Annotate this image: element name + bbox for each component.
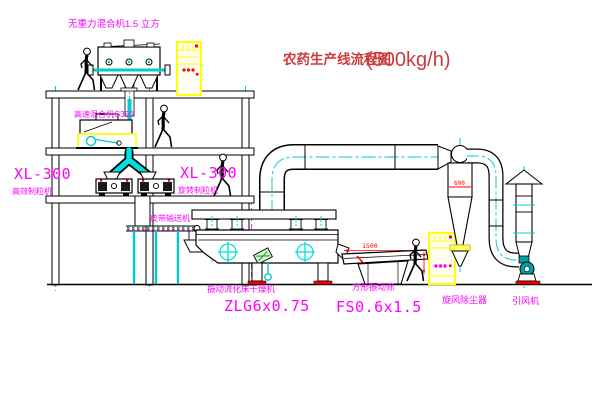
- cyclone-outlet-pipe: [467, 156, 520, 260]
- label-granulator-right-name: 旋转制粒机: [178, 185, 218, 195]
- dryer-exhaust-duct: [260, 145, 440, 214]
- indicator-dot: [195, 45, 198, 48]
- label-granulator-left-model: XL-300: [14, 165, 71, 183]
- sieve-base: [358, 261, 408, 284]
- label-high-speed-mixer: 高速混合机G350: [74, 109, 134, 119]
- label-dryer-name: 振动流化床干燥机: [207, 284, 276, 294]
- dim-cyclone-body: 600: [454, 180, 465, 187]
- left-wall: [52, 95, 59, 285]
- label-gravity-mixer: 无重力混合机1.5 立方: [68, 18, 160, 30]
- control-cabinet-2: [429, 233, 455, 284]
- label-belt-conveyor: 皮带输送机: [150, 213, 190, 223]
- page-title-capacity: (500kg/h): [366, 49, 451, 71]
- label-dryer-model: ZLG6x0.75: [224, 297, 310, 315]
- granulator-left: [96, 179, 132, 196]
- label-sieve-name: 方形振动筛: [352, 282, 395, 292]
- label-granulator-right-model: XL-300: [180, 164, 237, 182]
- label-sieve-model: FS0.6x1.5: [336, 298, 422, 316]
- label-cyclone: 旋风除尘器: [442, 294, 487, 305]
- label-granulator-left-name: 高效制粒机: [12, 186, 52, 196]
- dryer-hood: [192, 210, 336, 219]
- induced-draft-fan: [516, 256, 540, 285]
- worker-level2: [155, 105, 172, 147]
- label-fan: 引风机: [512, 295, 539, 306]
- control-cabinet-1: [177, 42, 201, 95]
- roof-slab: [46, 91, 254, 98]
- fan-base: [516, 281, 540, 285]
- process-flow-diagram: 无重力混合机1.5 立方 农药生产线流程图 (500kg/h) 高速混合机G35…: [0, 0, 600, 403]
- cyclone-vortex-finder: [452, 146, 469, 163]
- dim-sieve-length: 1500: [362, 242, 378, 250]
- cyclone-discharge-flange: [450, 245, 470, 251]
- rain-cap: [506, 170, 542, 184]
- fluid-bed-dryer: [184, 210, 349, 285]
- diagram-canvas: 无重力混合机1.5 立方 农药生产线流程图 (500kg/h) 高速混合机G35…: [0, 0, 600, 403]
- belt-conveyor: [126, 226, 200, 285]
- discharge-chute: [135, 196, 150, 226]
- indicator-dot: [449, 236, 452, 239]
- granulator-right: [138, 179, 174, 196]
- foot-pad: [314, 281, 332, 285]
